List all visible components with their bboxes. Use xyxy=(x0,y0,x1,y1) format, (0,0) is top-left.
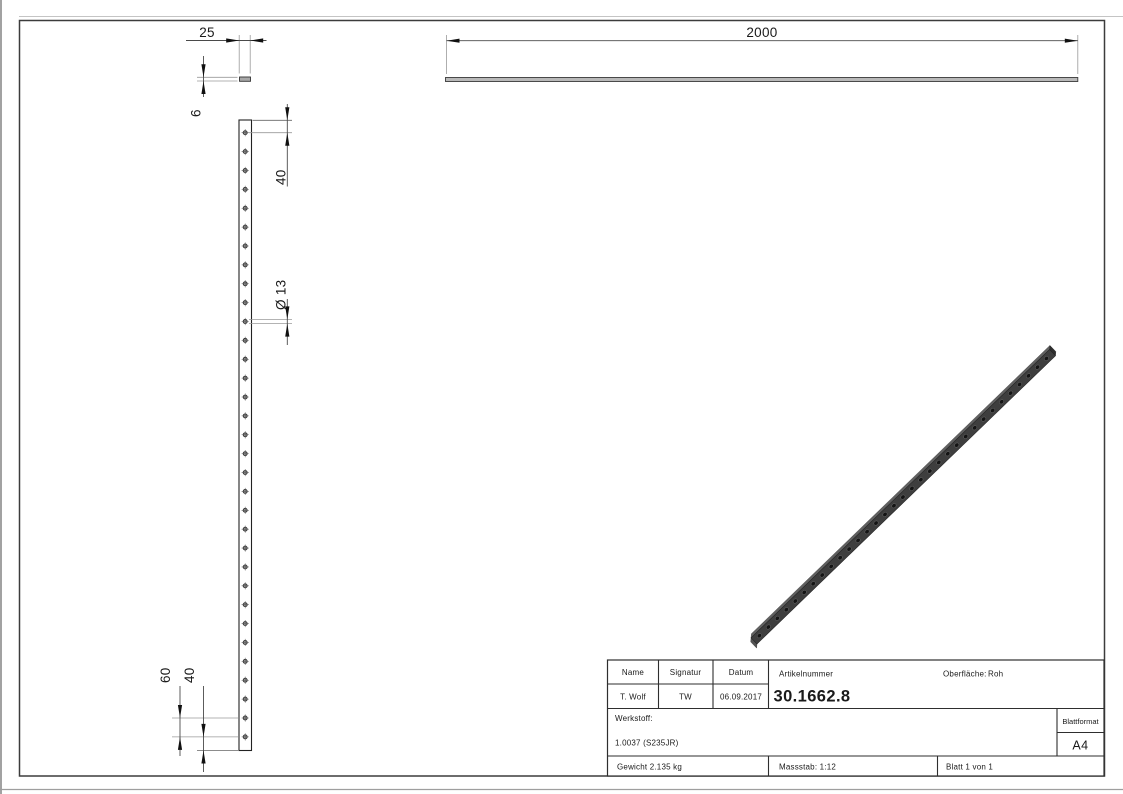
dim-hole-spacing-label: 60 xyxy=(158,667,173,683)
isometric-view xyxy=(747,345,1060,648)
sheet-number: Blatt 1 von 1 xyxy=(946,763,993,772)
date-value: 06.09.2017 xyxy=(720,693,762,702)
date-header: Datum xyxy=(729,668,754,677)
dimension-arrowhead xyxy=(201,751,205,764)
dimension-arrowhead xyxy=(201,81,205,94)
name-value: T. Wolf xyxy=(620,693,646,702)
dimension-arrowhead xyxy=(447,39,460,43)
dimension-arrowhead xyxy=(226,38,239,42)
dimension-arrowhead xyxy=(201,724,205,737)
sheet-format-value: A4 xyxy=(1072,739,1088,753)
dim-length-label: 2000 xyxy=(746,25,777,40)
dimension-arrowhead xyxy=(178,705,182,718)
material-label: Werkstoff: xyxy=(615,714,653,723)
dim-hole-diameter-label: Ø 13 xyxy=(274,280,289,310)
name-header: Name xyxy=(622,668,644,677)
surface-value: Roh xyxy=(988,670,1003,679)
drawing-canvas: 25 6 2000 40 Ø 13 60 40 Name Signatur Da… xyxy=(0,0,1123,794)
sheet-format-label: Blattformat xyxy=(1062,717,1099,726)
weight-value: Gewicht 2.135 kg xyxy=(617,763,682,772)
dimension-arrowhead xyxy=(285,324,289,337)
top-view xyxy=(446,78,1078,82)
section-view xyxy=(240,77,251,81)
iso-top-face xyxy=(749,345,1052,637)
title-block-frame xyxy=(608,660,1105,776)
dimension-arrowhead xyxy=(201,64,205,77)
title-block: Name Signatur Datum T. Wolf TW 06.09.201… xyxy=(608,660,1105,776)
cad-drawing-sheet: { "drawing": { "dimensions": { "length":… xyxy=(0,0,1123,794)
signature-header: Signatur xyxy=(670,668,702,677)
signature-value: TW xyxy=(679,693,692,702)
dimension-arrowhead xyxy=(285,107,289,120)
dim-thickness-label: 6 xyxy=(189,109,204,117)
dim-width-label: 25 xyxy=(199,25,215,40)
dimension-arrowhead xyxy=(178,737,182,750)
scale-value: Massstab: 1:12 xyxy=(779,763,836,772)
surface-label: Oberfläche: xyxy=(943,670,987,679)
dim-first-hole-offset-label: 40 xyxy=(274,169,289,185)
dim-last-hole-offset-label: 40 xyxy=(182,667,197,683)
article-number-label: Artikelnummer xyxy=(779,670,833,679)
dimension-arrowhead xyxy=(1065,39,1078,43)
dimension-arrowhead xyxy=(250,38,263,42)
dimension-arrowhead xyxy=(285,133,289,146)
article-number-value: 30.1662.8 xyxy=(774,688,851,706)
material-value: 1.0037 (S235JR) xyxy=(615,739,679,748)
